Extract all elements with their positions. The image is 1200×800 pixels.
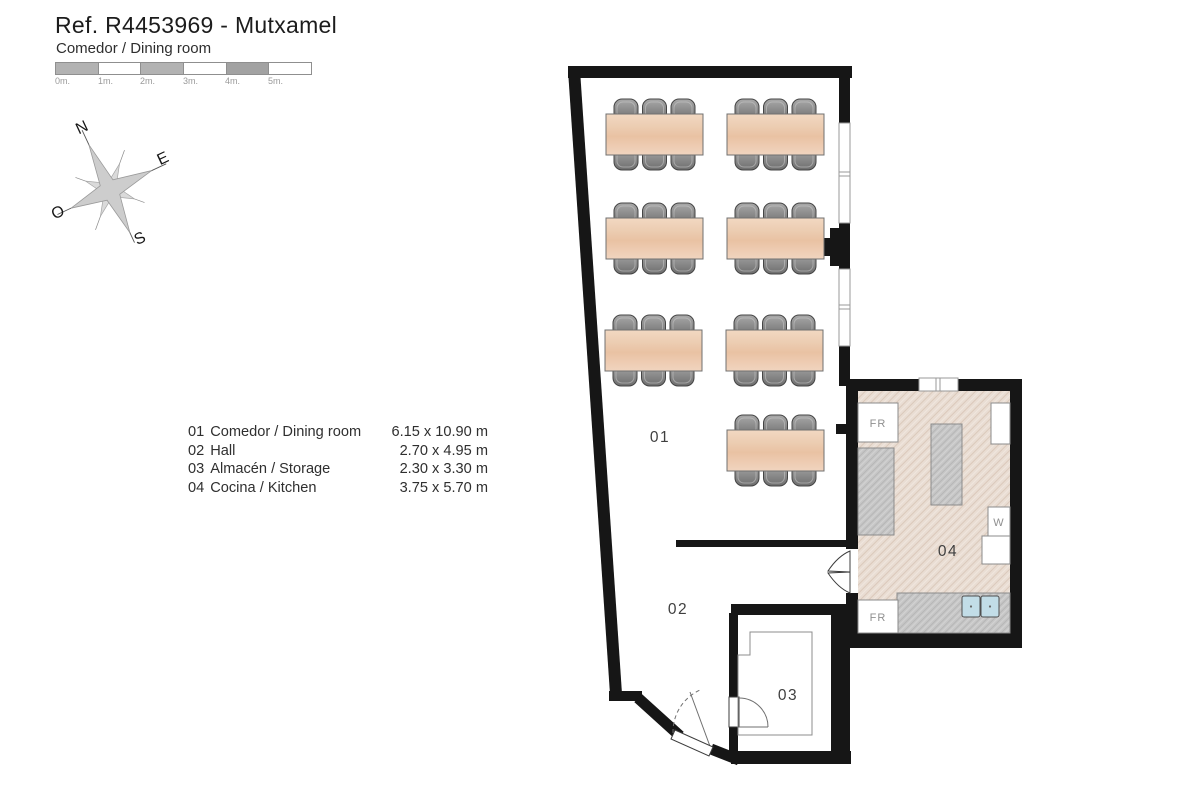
double-sink [962, 596, 999, 617]
window-east-1 [839, 123, 850, 223]
entrance-door [671, 690, 713, 756]
storage-door [729, 697, 768, 727]
floorplan-page: { "header": { "title": "Ref. R4453969 - … [0, 0, 1200, 800]
dining-table [727, 99, 824, 170]
dining-table [726, 315, 823, 386]
dining-table [606, 99, 703, 170]
dining-tables [605, 99, 824, 486]
kitchen-swing-doors [828, 551, 850, 593]
room-label-storage: 03 [778, 687, 798, 704]
fridge-bottom-label: FR [870, 612, 887, 624]
compass-west-label: O [49, 203, 67, 224]
washer-label: W [993, 517, 1004, 529]
storage-shelf [738, 632, 812, 735]
unit-below-washer-box [982, 536, 1010, 564]
floorplan-canvas: N E S O [0, 0, 1200, 800]
room-label-dining: 01 [650, 429, 670, 446]
dining-table [727, 203, 824, 274]
compass-east-label: E [155, 149, 172, 169]
kitchen-counter-left [858, 448, 894, 535]
kitchen-island [931, 424, 962, 505]
compass-rose: N E S O [30, 104, 191, 267]
window-east-2 [839, 269, 850, 346]
dining-table [606, 203, 703, 274]
window-kitchen-top [919, 378, 958, 391]
room-label-kitchen: 04 [938, 543, 958, 560]
corner-unit-box [991, 403, 1010, 444]
compass-north-label: N [73, 118, 91, 138]
fridge-top-label: FR [870, 418, 887, 430]
dining-table [605, 315, 702, 386]
room-label-hall: 02 [668, 601, 688, 618]
dining-table [727, 415, 824, 486]
compass-south-label: S [132, 229, 149, 249]
